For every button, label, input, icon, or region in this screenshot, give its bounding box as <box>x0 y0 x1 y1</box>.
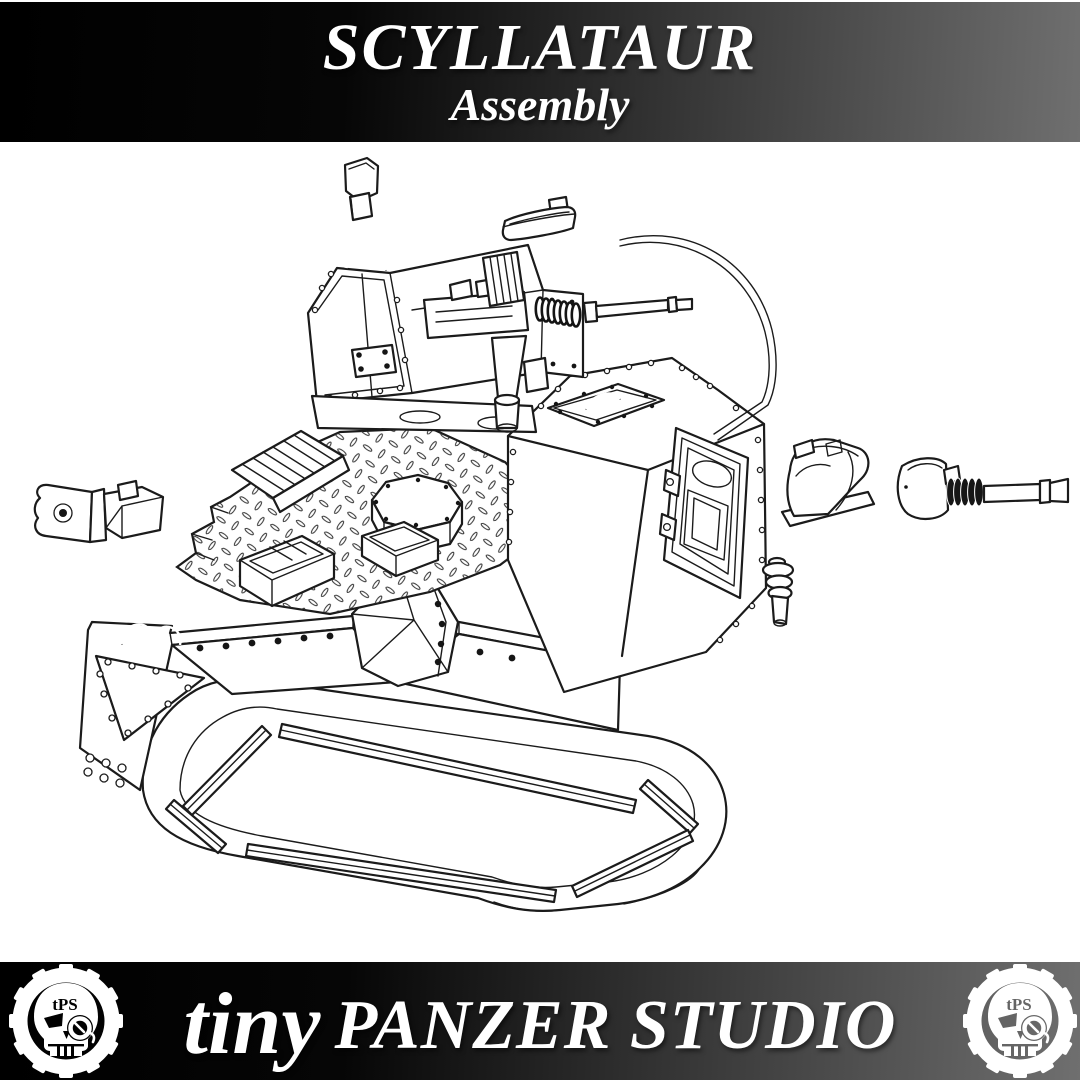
gun-cowl-part <box>782 439 874 526</box>
pintle-mount-part <box>35 481 163 542</box>
brand-wordmark: tiny PANZER STUDIO <box>184 962 897 1080</box>
hatch-cover-part <box>345 158 378 220</box>
deck-part <box>177 428 540 614</box>
turret-box-part <box>506 358 766 692</box>
page-subtitle: Assembly <box>451 81 630 129</box>
footer-banner: tiny PANZER STUDIO <box>0 962 1080 1080</box>
gun-barrel-part <box>898 458 1068 519</box>
page-title: SCYLLATAUR <box>323 15 757 81</box>
gear-skull-logo-left-icon <box>6 961 126 1080</box>
poster: SCYLLATAUR Assembly tiny PANZER STUDIO <box>0 0 1080 1080</box>
brand-name: PANZER STUDIO <box>334 986 896 1066</box>
periscope-part <box>763 558 793 626</box>
brand-prefix: tiny <box>184 974 321 1075</box>
header-banner: SCYLLATAUR Assembly <box>0 2 1080 142</box>
cupola-tray-part <box>503 197 575 240</box>
assembly-diagram <box>0 0 1080 1080</box>
gear-skull-logo-right-icon <box>960 961 1080 1080</box>
track-frame-part <box>143 679 727 911</box>
